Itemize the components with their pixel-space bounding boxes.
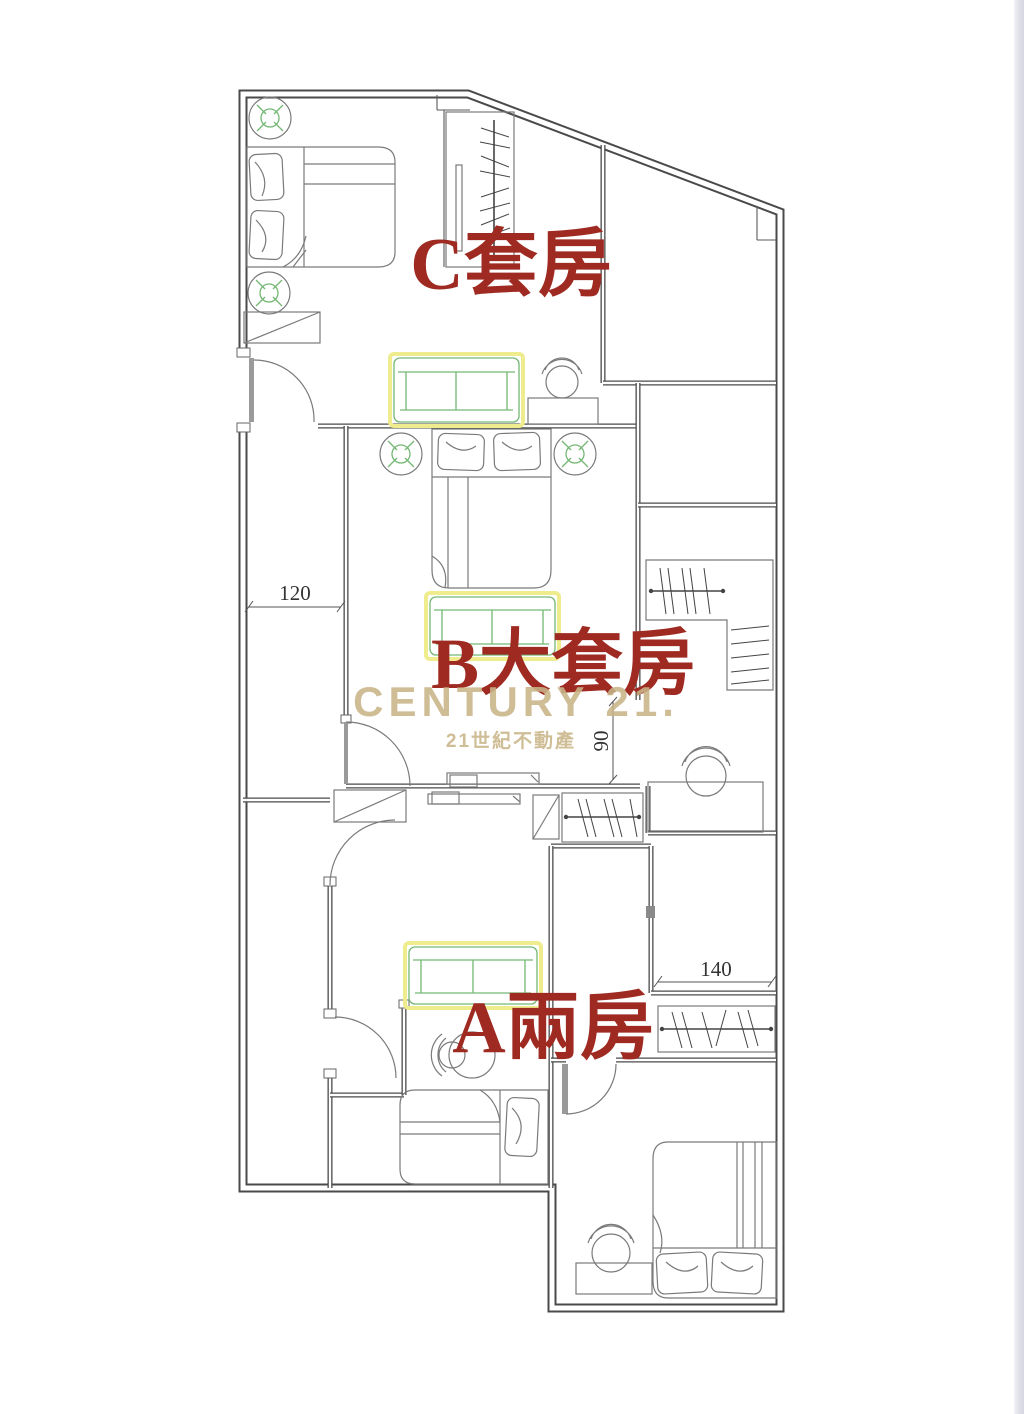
room-a-closet <box>658 1006 775 1052</box>
room-c-desk-chair <box>528 358 598 424</box>
door-leaf <box>344 722 348 784</box>
shoe-cabinet <box>334 790 406 822</box>
century21-watermark: CENTURY 21. 21世紀不動產 <box>353 678 679 752</box>
door-arc <box>335 1017 396 1078</box>
dimension-value: 120 <box>279 581 311 605</box>
room-c-shelf <box>244 312 320 343</box>
room-a-single-bed <box>400 1090 548 1184</box>
door-arc <box>566 1064 616 1114</box>
door-jamb <box>237 423 250 432</box>
room-a-label: A兩房 <box>452 987 653 1069</box>
ceiling-light <box>248 272 290 314</box>
floor-plan-page: 120 90 140 C套房 B大套房 A兩房 CENTURY 21. 21世紀… <box>0 0 1024 1414</box>
page-edge-scroll-strip[interactable] <box>1014 0 1024 1414</box>
room-a2-desk-chair <box>576 1224 652 1294</box>
door-arc <box>346 722 410 786</box>
hall-wardrobe <box>562 793 643 842</box>
room-c-label: C套房 <box>410 224 611 306</box>
ceiling-light <box>554 433 596 475</box>
dimension-120: 120 <box>245 581 345 612</box>
door-jamb <box>237 348 250 357</box>
door-jamb <box>324 1009 336 1018</box>
room-a2-double-bed <box>653 1142 777 1298</box>
dimension-140: 140 <box>654 957 776 987</box>
room-c-sofa <box>390 354 523 426</box>
watermark-brand: CENTURY 21. <box>353 678 679 725</box>
room-b-bed <box>432 429 551 588</box>
ceiling-light <box>380 433 422 475</box>
c-door-opening <box>236 356 250 424</box>
door-arc <box>254 360 314 422</box>
watermark-subtitle: 21世紀不動產 <box>446 729 576 752</box>
tv-cabinet <box>428 792 520 804</box>
door-leaf <box>249 358 254 422</box>
room-c-bed <box>247 147 395 267</box>
dimension-value: 140 <box>700 957 732 981</box>
ceiling-light <box>249 97 291 139</box>
wall-stub <box>646 906 655 918</box>
floor-plan: 120 90 140 C套房 B大套房 A兩房 CENTURY 21. 21世紀… <box>0 0 1024 1414</box>
door-jamb <box>324 1069 336 1078</box>
room-b-bath-vanity-chair <box>648 747 763 832</box>
door-leaf <box>562 1064 568 1114</box>
hall-column <box>533 795 559 839</box>
dimension-value: 90 <box>589 731 613 752</box>
entry-door-arc <box>330 820 395 885</box>
